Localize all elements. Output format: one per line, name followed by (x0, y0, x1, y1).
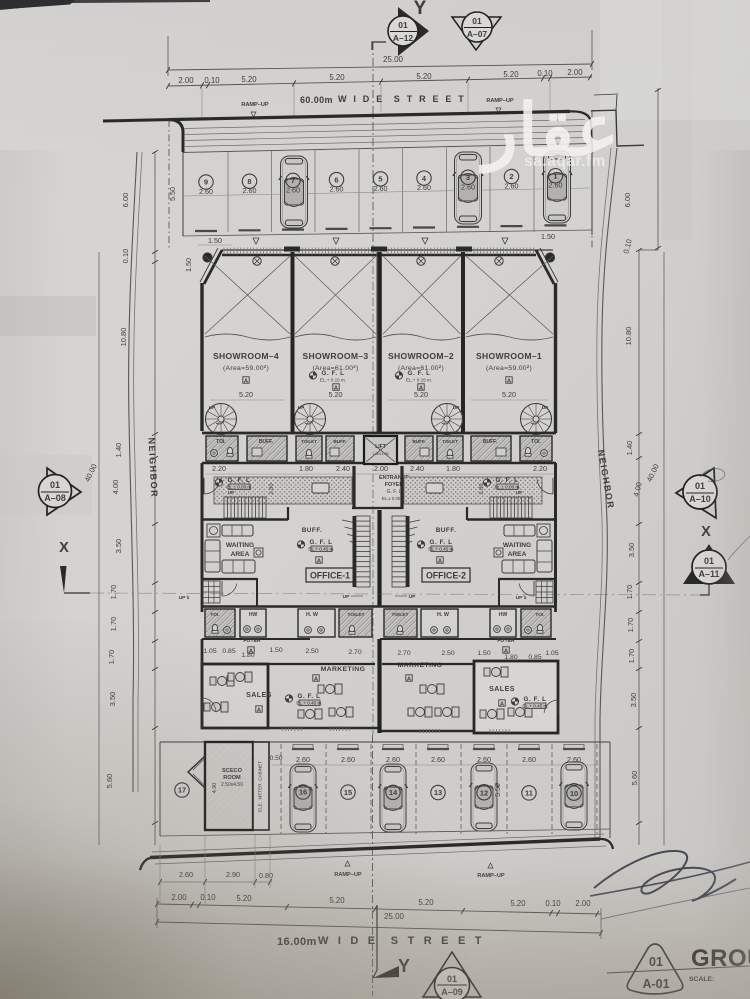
svg-text:5.20: 5.20 (241, 75, 257, 84)
svg-text:1.50: 1.50 (541, 232, 555, 241)
svg-text:5.20: 5.20 (503, 70, 519, 79)
svg-text:2.80: 2.80 (269, 483, 275, 494)
svg-text:8: 8 (247, 177, 251, 186)
svg-text:1.40: 1.40 (625, 441, 634, 456)
svg-text:BUFF.: BUFF. (436, 527, 457, 534)
svg-text:2.60: 2.60 (286, 185, 300, 194)
svg-text:H. W: H. W (306, 612, 319, 618)
svg-text:EL.+ 0.45 m.: EL.+ 0.45 m. (308, 546, 334, 551)
svg-text:2.60: 2.60 (243, 186, 257, 195)
svg-text:sa.aqar.fm: sa.aqar.fm (524, 153, 606, 170)
svg-text:BUFF.: BUFF. (259, 439, 274, 445)
svg-text:5.50: 5.50 (168, 187, 177, 201)
svg-text:2.60: 2.60 (505, 182, 519, 191)
svg-text:TOILET: TOILET (442, 439, 458, 444)
svg-text:3: 3 (466, 173, 470, 182)
svg-text:6: 6 (334, 175, 338, 184)
svg-text:0.10: 0.10 (537, 69, 553, 78)
svg-text:9: 9 (204, 178, 208, 187)
svg-text:2.60: 2.60 (330, 185, 344, 194)
svg-text:SHOWROOM–2: SHOWROOM–2 (388, 351, 454, 361)
svg-text:BUFF.: BUFF. (333, 439, 346, 444)
svg-text:WAITING: WAITING (226, 542, 254, 549)
svg-text:OFFICE-2: OFFICE-2 (426, 571, 466, 581)
svg-text:2.80: 2.80 (479, 483, 485, 494)
svg-text:1.50: 1.50 (208, 236, 222, 245)
svg-text:BUFF.: BUFF. (483, 439, 498, 445)
svg-text:01: 01 (472, 16, 482, 26)
svg-text:EL.± 0.00 m.: EL.± 0.00 m. (494, 484, 520, 489)
svg-text:2.40: 2.40 (336, 464, 350, 473)
svg-text:TOI.: TOI. (216, 439, 226, 445)
svg-text:UP: UP (228, 490, 234, 495)
svg-text:1.50x1.50: 1.50x1.50 (372, 452, 389, 456)
svg-text:0.10: 0.10 (121, 249, 130, 264)
svg-text:5.20: 5.20 (416, 72, 432, 81)
svg-text:2.60: 2.60 (549, 181, 563, 190)
svg-text:A–07: A–07 (467, 29, 488, 39)
svg-text:UP: UP (453, 405, 459, 410)
svg-text:G. F. L: G. F. L (387, 489, 402, 495)
svg-text:H. W: H. W (437, 612, 450, 618)
svg-text:5.20: 5.20 (329, 73, 345, 82)
svg-text:1.80: 1.80 (446, 464, 460, 473)
svg-text:(Area=59.00²): (Area=59.00²) (486, 365, 532, 372)
svg-text:LIFT: LIFT (375, 444, 386, 450)
svg-text:3.50: 3.50 (627, 543, 636, 558)
svg-text:2.60: 2.60 (417, 183, 431, 192)
svg-text:6.00: 6.00 (121, 193, 130, 208)
svg-text:UP↴: UP↴ (516, 595, 527, 601)
svg-text:EL.± 0.00 m.: EL.± 0.00 m. (226, 484, 252, 489)
svg-text:EL.+ 0.45 m.: EL.+ 0.45 m. (428, 546, 454, 551)
svg-text:5.20: 5.20 (239, 390, 253, 399)
svg-text:10.80: 10.80 (624, 327, 633, 346)
svg-text:1.80: 1.80 (299, 464, 313, 473)
svg-text:(Area=59.00²): (Area=59.00²) (223, 365, 269, 372)
svg-text:01: 01 (398, 20, 408, 30)
svg-text:G. F. L: G. F. L (429, 539, 452, 546)
svg-text:G. F. L: G. F. L (495, 477, 518, 484)
svg-text:1.70: 1.70 (109, 585, 118, 600)
svg-text:EL.+ 0.15 m.: EL.+ 0.15 m. (406, 378, 432, 383)
svg-text:G. F. L: G. F. L (407, 370, 430, 377)
svg-text:2.40: 2.40 (410, 464, 424, 473)
svg-text:HW: HW (499, 612, 508, 618)
svg-text:60.00m: 60.00m (300, 95, 333, 105)
svg-text:Y: Y (414, 0, 427, 19)
svg-text:SHOWROOM–3: SHOWROOM–3 (302, 351, 368, 361)
svg-text:X: X (59, 540, 69, 556)
svg-text:RAMP–UP: RAMP–UP (241, 102, 269, 108)
svg-text:G. F. L: G. F. L (309, 539, 332, 546)
svg-text:UP: UP (298, 405, 304, 410)
svg-text:BUFF.: BUFF. (302, 527, 323, 534)
svg-text:UP: UP (409, 594, 416, 600)
svg-text:UP: UP (542, 405, 548, 410)
svg-text:UP: UP (516, 490, 522, 495)
svg-text:2.60: 2.60 (461, 182, 475, 191)
svg-text:2.00: 2.00 (374, 464, 388, 473)
svg-text:SHOWROOM–1: SHOWROOM–1 (476, 351, 542, 361)
svg-text:TOI.: TOI. (535, 612, 544, 618)
svg-text:WAITING: WAITING (503, 542, 531, 549)
svg-text:TOILET: TOILET (392, 612, 409, 618)
svg-text:1.50: 1.50 (184, 258, 193, 272)
svg-text:AREA: AREA (508, 551, 527, 558)
svg-text:G. F. L: G. F. L (227, 477, 250, 484)
svg-text:1: 1 (553, 171, 557, 180)
svg-text:A–08: A–08 (44, 493, 66, 503)
svg-text:2: 2 (509, 172, 513, 181)
svg-text:A–12: A–12 (393, 33, 414, 43)
svg-text:1.70: 1.70 (625, 585, 634, 600)
svg-text:TOILET: TOILET (301, 439, 317, 444)
svg-text:5.20: 5.20 (502, 390, 516, 399)
svg-text:TOI.: TOI. (210, 612, 219, 618)
svg-text:25.00: 25.00 (383, 55, 404, 64)
svg-text:6.00: 6.00 (623, 193, 632, 208)
svg-text:2.00: 2.00 (567, 68, 583, 77)
svg-text:UP↴: UP↴ (179, 595, 190, 601)
svg-text:TOI.: TOI. (531, 439, 541, 445)
svg-text:AREA: AREA (231, 551, 250, 558)
svg-text:2.00: 2.00 (178, 76, 194, 85)
svg-text:BUFF.: BUFF. (412, 439, 425, 444)
svg-text:2.60: 2.60 (199, 187, 213, 196)
svg-text:TOILET: TOILET (348, 612, 365, 618)
svg-text:10.80: 10.80 (119, 328, 128, 347)
svg-text:01: 01 (50, 480, 60, 490)
svg-text:1.40: 1.40 (114, 443, 123, 458)
svg-text:5: 5 (378, 175, 382, 184)
svg-text:0.10: 0.10 (204, 76, 220, 85)
svg-text:7: 7 (291, 176, 295, 185)
svg-text:G. F. L: G. F. L (321, 370, 344, 377)
svg-text:3.50: 3.50 (114, 539, 123, 554)
svg-text:UP: UP (343, 594, 350, 600)
svg-text:4.00: 4.00 (111, 480, 120, 495)
svg-text:SHOWROOM–4: SHOWROOM–4 (213, 351, 279, 361)
svg-text:UP: UP (209, 405, 215, 410)
svg-text:OFFICE-1: OFFICE-1 (310, 571, 350, 581)
svg-text:2.20: 2.20 (533, 464, 547, 473)
svg-text:2.20: 2.20 (212, 464, 226, 473)
svg-text:W I D E S T R E E T: W I D E S T R E E T (338, 94, 466, 104)
svg-text:2.60: 2.60 (374, 184, 388, 193)
svg-text:HW: HW (249, 612, 258, 618)
svg-text:EL.+ 0.15 m.: EL.+ 0.15 m. (320, 378, 346, 383)
